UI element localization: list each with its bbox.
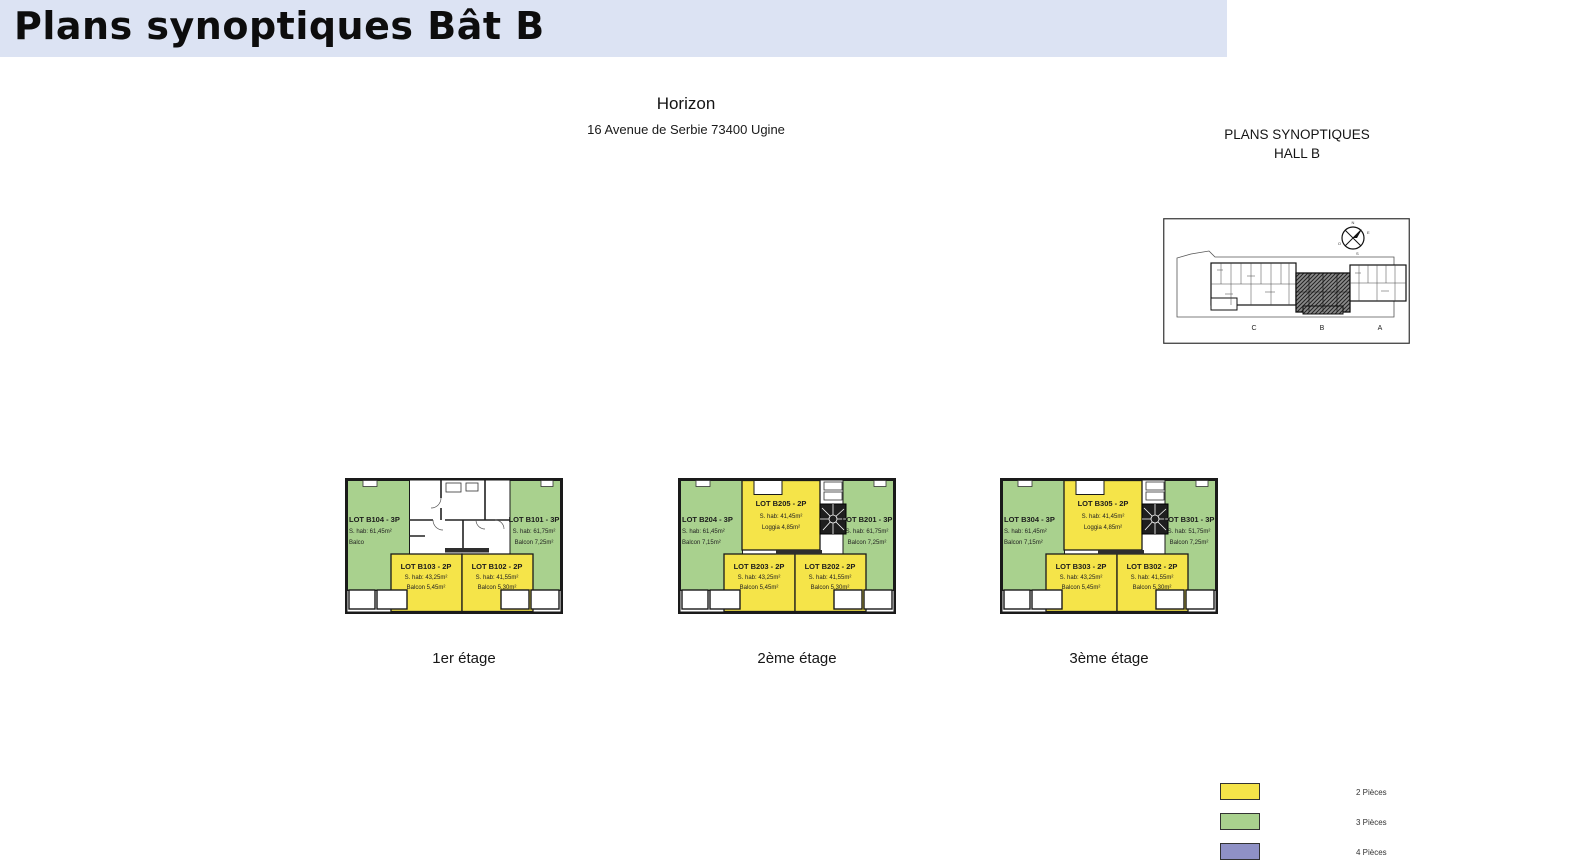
building-label-c: C xyxy=(1251,325,1256,332)
unit-lot-label: LOT B205 - 2P xyxy=(756,499,807,508)
compass-e: E xyxy=(1367,230,1370,235)
threshold-bar xyxy=(445,548,489,553)
compass-o: O xyxy=(1338,241,1341,246)
unit-lot-label: LOT B204 - 3P xyxy=(682,515,733,524)
compass-s: S xyxy=(1356,251,1359,256)
unit-area-label: S. hab: 41,55m² xyxy=(809,575,852,581)
building-c-footprint xyxy=(1211,263,1296,310)
project-name: Horizon xyxy=(486,94,886,114)
loggia-notch xyxy=(754,481,782,495)
legend-label-2-pieces: 2 Pièces xyxy=(1356,788,1387,797)
legend-swatch-4-pieces xyxy=(1220,843,1260,860)
page: Plans synoptiques Bât B Horizon 16 Avenu… xyxy=(0,0,1588,864)
floor-plan-3eme-etage: LOT B304 - 3P S. hab: 61,45m² Balcon 7,1… xyxy=(1000,478,1218,614)
legend-label-3-pieces: 3 Pièces xyxy=(1356,818,1387,827)
unit-area-label: S. hab: 61,45m² xyxy=(349,529,392,535)
floor-plan-1er-etage: LOT B104 - 3P S. hab: 61,45m² Balco LOT … xyxy=(345,478,563,614)
unit-area-label: S. hab: 43,25m² xyxy=(405,575,448,581)
unit-area-label: S. hab: 61,75m² xyxy=(513,529,556,535)
project-address: 16 Avenue de Serbie 73400 Ugine xyxy=(436,122,936,137)
unit-area-label: S. hab: 41,55m² xyxy=(476,575,519,581)
unit-lot-label: LOT B305 - 2P xyxy=(1078,499,1129,508)
unit-lot-label: LOT B301 - 3P xyxy=(1164,515,1215,524)
unit-area-label: S. hab: 43,25m² xyxy=(738,575,781,581)
unit-balcony-label: Balco xyxy=(349,540,365,546)
floor-caption-1: 1er étage xyxy=(355,650,573,667)
unit-lot-label: LOT B201 - 3P xyxy=(842,515,893,524)
unit-lot-label: LOT B302 - 2P xyxy=(1127,562,1178,571)
unit-lot-label: LOT B104 - 3P xyxy=(349,515,400,524)
unit-area-label: S. hab: 43,25m² xyxy=(1060,575,1103,581)
unit-area-label: S. hab: 61,45m² xyxy=(1004,529,1047,535)
site-plan-title-line2: HALL B xyxy=(1157,145,1437,164)
unit-balcony-label: Balcon 5,30m² xyxy=(1133,585,1172,591)
legend-swatch-2-pieces xyxy=(1220,783,1260,800)
unit-balcony-label: Balcon 5,30m² xyxy=(478,585,517,591)
unit-lot-label: LOT B203 - 2P xyxy=(734,562,785,571)
unit-lot-label: LOT B304 - 3P xyxy=(1004,515,1055,524)
building-b-footprint xyxy=(1296,273,1350,314)
unit-balcony-label: Balcon 7,15m² xyxy=(682,540,721,546)
unit-area-label: S. hab: 61,75m² xyxy=(846,529,889,535)
legend-swatch-3-pieces xyxy=(1220,813,1260,830)
unit-lot-label: LOT B101 - 3P xyxy=(509,515,560,524)
unit-area-label: S. hab: 41,55m² xyxy=(1131,575,1174,581)
building-label-a: A xyxy=(1378,325,1383,332)
unit-area-label: S. hab: 61,45m² xyxy=(682,529,725,535)
unit-lot-label: LOT B202 - 2P xyxy=(805,562,856,571)
unit-area-label: S. hab: 41,45m² xyxy=(760,514,803,520)
unit-balcony-label: Balcon 7,15m² xyxy=(1004,540,1043,546)
site-plan-title-line1: PLANS SYNOPTIQUES xyxy=(1157,126,1437,145)
unit-area-label: S. hab: 51,75m² xyxy=(1168,529,1211,535)
unit-balcony-label: Loggia 4,85m² xyxy=(762,525,800,531)
unit-balcony-label: Balcon 5,45m² xyxy=(407,585,446,591)
building-a-footprint xyxy=(1350,265,1406,301)
floor-caption-2: 2ème étage xyxy=(688,650,906,667)
unit-balcony-label: Loggia 4,85m² xyxy=(1084,525,1122,531)
page-title: Plans synoptiques Bât B xyxy=(14,4,545,48)
legend-label-4-pieces: 4 Pièces xyxy=(1356,848,1387,857)
site-plan-title: PLANS SYNOPTIQUES HALL B xyxy=(1157,126,1437,164)
unit-balcony-label: Balcon 7,25m² xyxy=(515,540,554,546)
threshold-bar xyxy=(776,550,822,555)
unit-balcony-label: Balcon 5,45m² xyxy=(740,585,779,591)
loggia-notch xyxy=(1076,481,1104,495)
building-label-b: B xyxy=(1320,325,1325,332)
unit-balcony-label: Balcon 5,30m² xyxy=(811,585,850,591)
threshold-bar xyxy=(1098,550,1144,555)
unit-lot-label: LOT B102 - 2P xyxy=(472,562,523,571)
unit-balcony-label: Balcon 5,45m² xyxy=(1062,585,1101,591)
compass-n: N xyxy=(1352,220,1355,225)
unit-area-label: S. hab: 41,45m² xyxy=(1082,514,1125,520)
unit-lot-label: LOT B303 - 2P xyxy=(1056,562,1107,571)
unit-lot-label: LOT B103 - 2P xyxy=(401,562,452,571)
unit-balcony-label: Balcon 7,25m² xyxy=(848,540,887,546)
floor-plan-2eme-etage: LOT B204 - 3P S. hab: 61,45m² Balcon 7,1… xyxy=(678,478,896,614)
unit-balcony-label: Balcon 7,25m² xyxy=(1170,540,1209,546)
floor-caption-3: 3ème étage xyxy=(1000,650,1218,667)
site-key-plan: N E S O C B A xyxy=(1163,218,1410,344)
